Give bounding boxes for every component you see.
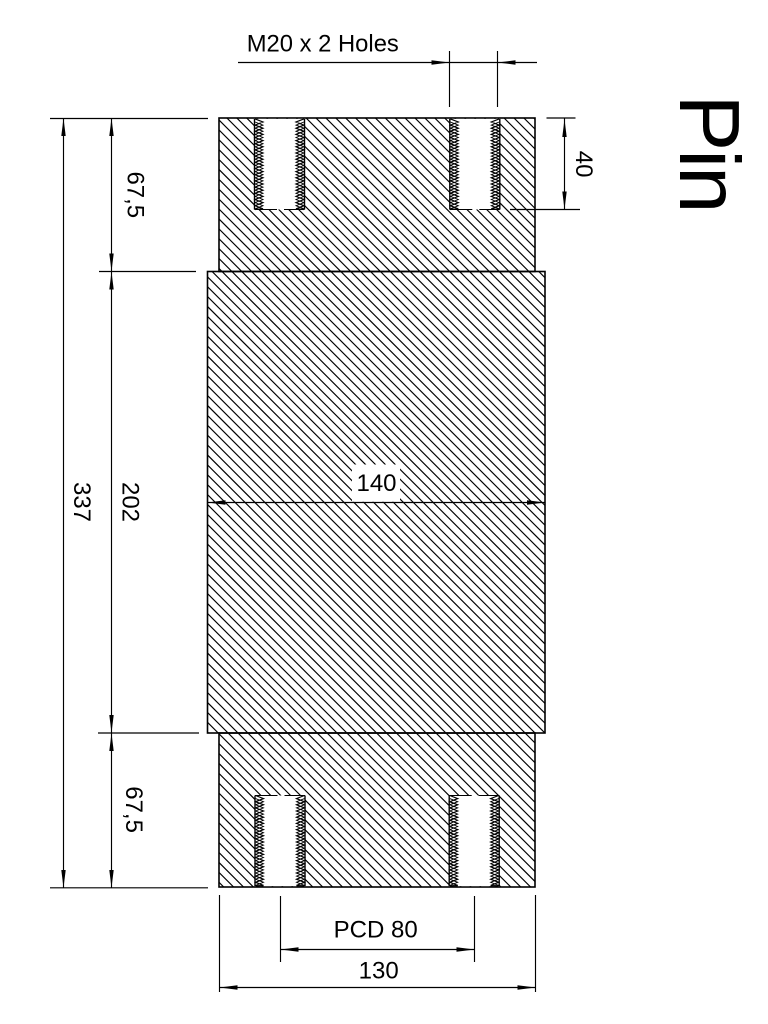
svg-text:Pin: Pin [661, 95, 756, 212]
svg-text:PCD 80: PCD 80 [334, 916, 418, 943]
svg-text:140: 140 [356, 470, 396, 497]
svg-text:130: 130 [359, 957, 399, 984]
svg-text:67,5: 67,5 [120, 786, 147, 833]
svg-text:67,5: 67,5 [121, 171, 148, 218]
svg-text:40: 40 [570, 151, 597, 178]
svg-text:M20 x 2 Holes: M20 x 2 Holes [247, 30, 399, 57]
svg-text:337: 337 [68, 482, 95, 522]
svg-text:202: 202 [116, 482, 143, 522]
